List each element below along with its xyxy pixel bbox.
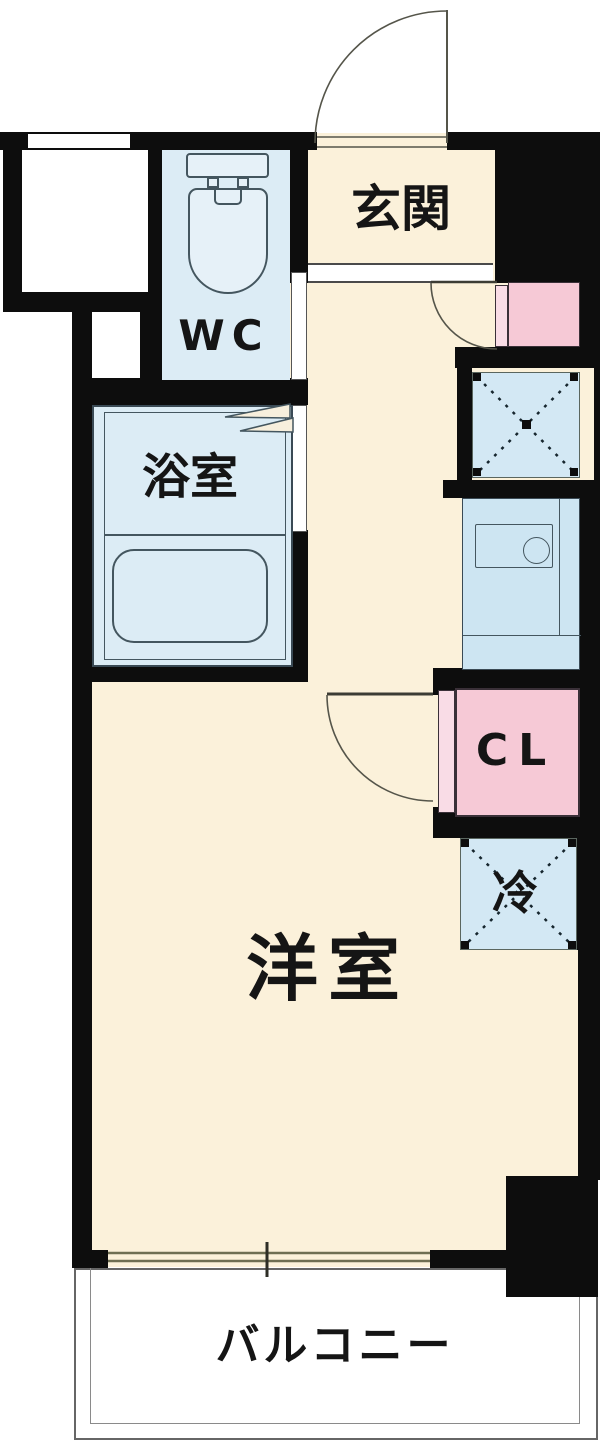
- shoe-cabinet-door: [495, 285, 508, 347]
- wall: [3, 292, 162, 312]
- toilet-hinge-icon: [207, 177, 219, 188]
- label-main-room: 洋室: [246, 933, 410, 1005]
- toilet-flush-notch-icon: [214, 190, 242, 205]
- closet-door: [438, 690, 455, 813]
- wall: [443, 480, 600, 498]
- entrance-step: [308, 263, 493, 283]
- wall-opening-notch: [28, 134, 130, 148]
- label-bathroom: 浴室: [142, 453, 238, 501]
- shoe-cabinet: [508, 282, 580, 347]
- wall: [578, 950, 600, 1180]
- toilet-hinge-icon: [237, 177, 249, 188]
- kitchen-unit: [462, 498, 580, 670]
- wall: [437, 817, 600, 838]
- kitchen-burner-icon: [523, 537, 550, 564]
- wall: [75, 378, 308, 405]
- wall: [577, 838, 600, 950]
- void-box-top-left: [22, 150, 148, 292]
- wc-door: [291, 272, 307, 380]
- label-closet: CL: [476, 729, 556, 773]
- label-entrance: 玄関: [351, 184, 451, 234]
- bathtub-icon: [112, 549, 268, 643]
- structural-pillar: [506, 1176, 598, 1297]
- wall: [580, 695, 600, 817]
- bathroom-divider-line: [104, 534, 286, 536]
- kitchen-divider-vline: [559, 499, 560, 635]
- toilet-tank-icon: [186, 153, 269, 178]
- wall: [3, 150, 22, 312]
- pipe-space-void: [92, 312, 140, 378]
- wall: [457, 368, 472, 480]
- floorplan-canvas: 玄関 WC 浴室 CL 冷 洋室 バルコニー: [0, 0, 600, 1443]
- wall: [72, 667, 308, 682]
- wall: [455, 347, 600, 368]
- wall: [72, 312, 92, 1268]
- label-balcony: バルコニー: [215, 1324, 454, 1368]
- label-wc: WC: [178, 315, 269, 357]
- wall: [580, 283, 600, 347]
- washing-machine-space-icon: [472, 372, 580, 478]
- entrance-door-arc: [315, 11, 447, 143]
- window-end-left: [73, 1250, 108, 1268]
- wall: [290, 150, 308, 283]
- window-end-right: [430, 1250, 516, 1268]
- wall: [580, 498, 600, 668]
- wall: [447, 132, 600, 150]
- wall: [495, 150, 600, 283]
- kitchen-divider-hline: [463, 635, 581, 636]
- wall: [594, 368, 600, 480]
- label-refrigerator: 冷: [492, 870, 538, 916]
